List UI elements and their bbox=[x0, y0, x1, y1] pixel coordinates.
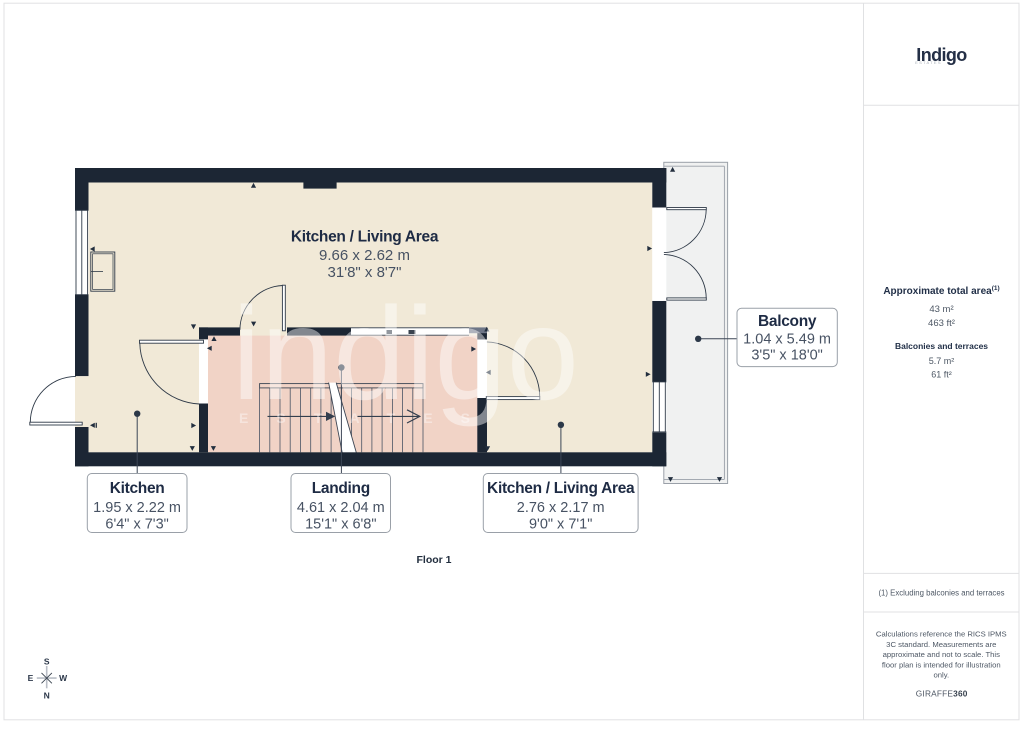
svg-text:Kitchen / Living Area: Kitchen / Living Area bbox=[291, 229, 439, 246]
svg-text:1.04 x 5.49 m: 1.04 x 5.49 m bbox=[743, 332, 831, 348]
svg-text:W: W bbox=[59, 673, 68, 683]
svg-text:3C standard. Measurements are: 3C standard. Measurements are bbox=[886, 640, 996, 649]
svg-text:6'4" x 7'3": 6'4" x 7'3" bbox=[105, 517, 168, 533]
svg-text:5.7 m²: 5.7 m² bbox=[929, 356, 955, 366]
svg-text:9'0" x 7'1": 9'0" x 7'1" bbox=[529, 517, 592, 533]
svg-text:4.61 x 2.04 m: 4.61 x 2.04 m bbox=[297, 500, 385, 516]
svg-text:Floor 1: Floor 1 bbox=[416, 554, 451, 566]
svg-text:3'5" x 18'0": 3'5" x 18'0" bbox=[751, 348, 822, 364]
svg-text:15'1" x 6'8": 15'1" x 6'8" bbox=[305, 517, 376, 533]
svg-text:Balconies and terraces: Balconies and terraces bbox=[895, 341, 988, 351]
svg-text:E: E bbox=[28, 673, 34, 683]
svg-text:indigo: indigo bbox=[232, 280, 579, 427]
svg-text:approximate and not to scale.: approximate and not to scale. This bbox=[883, 650, 1001, 659]
svg-text:Calculations reference the RIC: Calculations reference the RICS IPMS bbox=[876, 630, 1007, 639]
svg-text:Kitchen: Kitchen bbox=[110, 480, 165, 497]
svg-text:(1) Excluding balconies and te: (1) Excluding balconies and terraces bbox=[878, 589, 1004, 598]
svg-text:Approximate total area(1): Approximate total area(1) bbox=[883, 285, 999, 297]
svg-text:N: N bbox=[44, 691, 50, 701]
svg-text:Kitchen / Living Area: Kitchen / Living Area bbox=[487, 480, 635, 497]
svg-text:43 m²: 43 m² bbox=[929, 304, 953, 315]
svg-text:GIRAFFE360: GIRAFFE360 bbox=[916, 689, 968, 699]
svg-text:ESTATES: ESTATES bbox=[915, 60, 942, 65]
svg-text:Balcony: Balcony bbox=[758, 313, 817, 330]
svg-text:31'8" x 8'7": 31'8" x 8'7" bbox=[328, 264, 402, 281]
svg-text:61 ft²: 61 ft² bbox=[931, 370, 952, 380]
svg-text:2.76 x 2.17 m: 2.76 x 2.17 m bbox=[517, 500, 605, 516]
svg-text:9.66 x 2.62 m: 9.66 x 2.62 m bbox=[319, 247, 410, 264]
svg-text:only.: only. bbox=[933, 671, 949, 680]
svg-text:S: S bbox=[44, 656, 50, 666]
svg-text:1.95 x 2.22 m: 1.95 x 2.22 m bbox=[93, 500, 181, 516]
svg-text:Landing: Landing bbox=[312, 480, 370, 497]
svg-text:floor plan is intended for ill: floor plan is intended for illustration bbox=[882, 660, 1001, 669]
svg-text:463 ft²: 463 ft² bbox=[928, 318, 955, 329]
